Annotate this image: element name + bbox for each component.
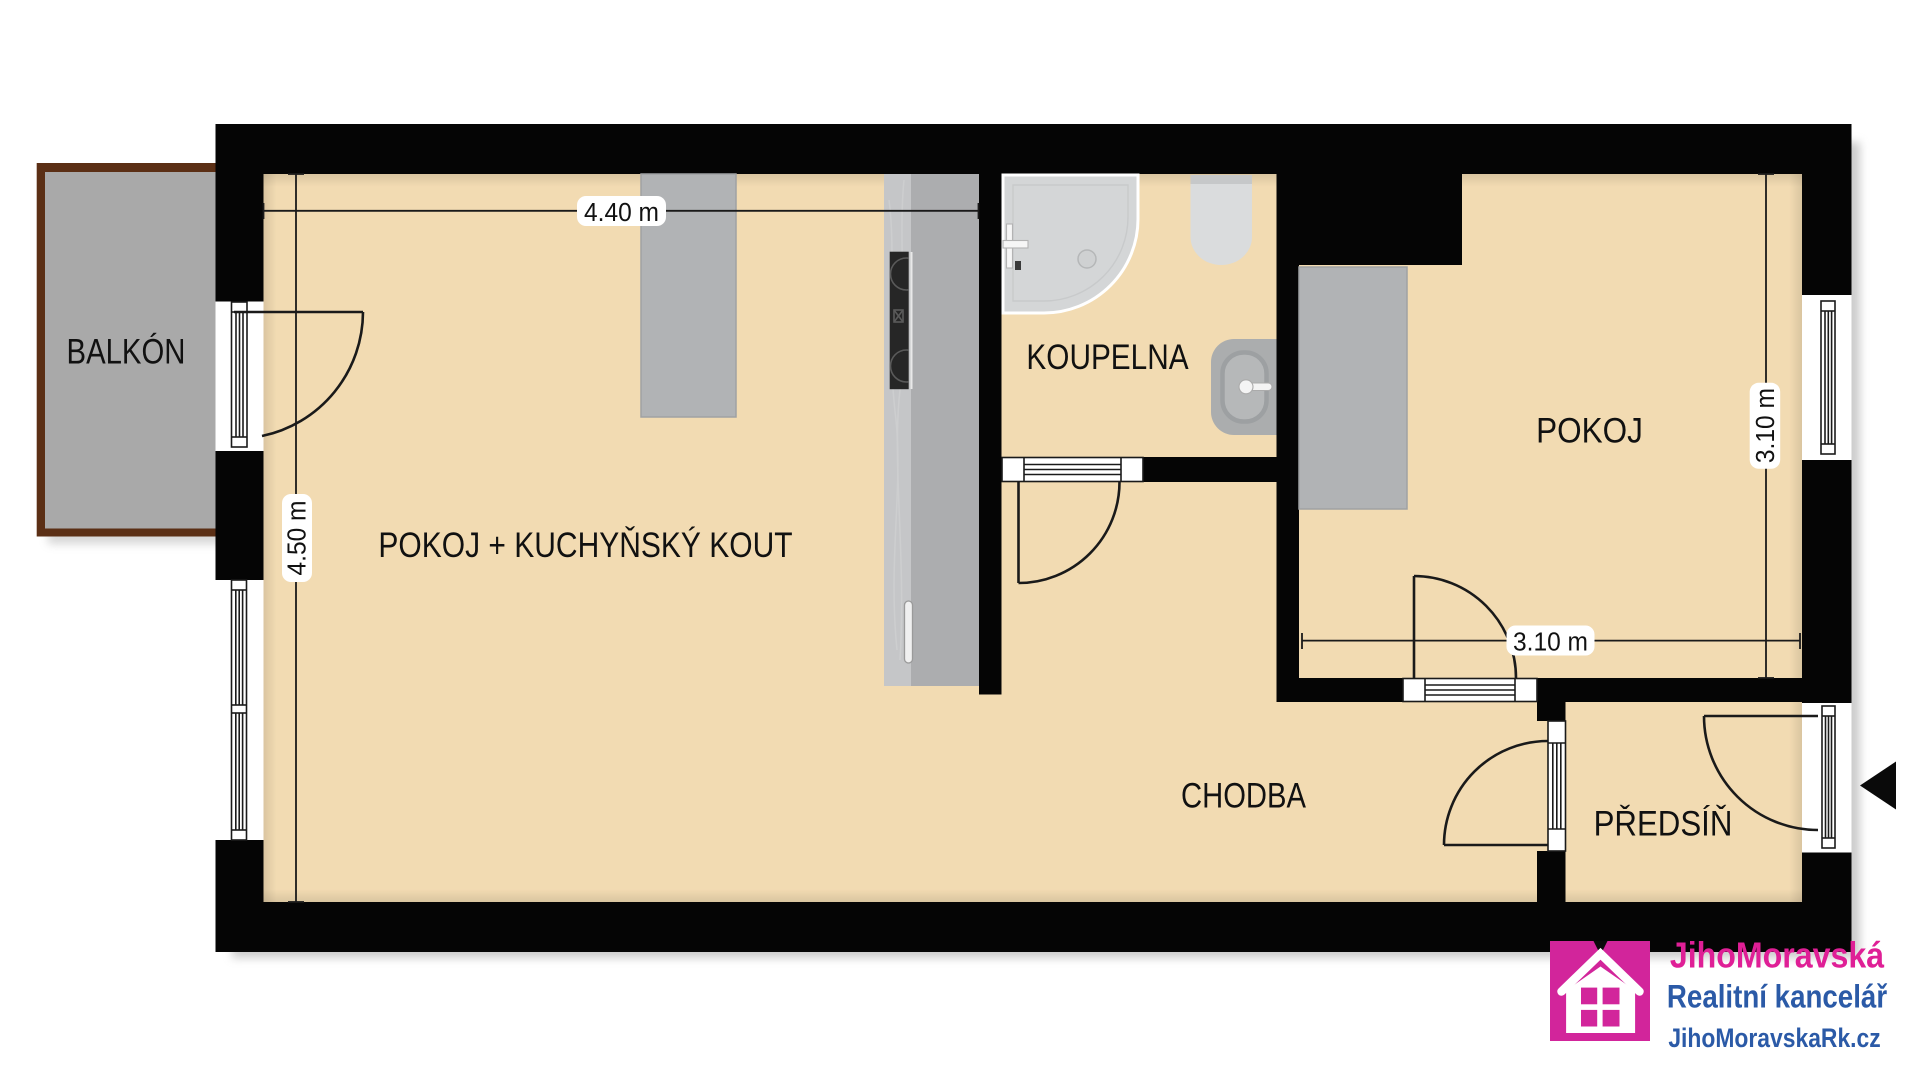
- svg-text:POKOJ: POKOJ: [1536, 412, 1643, 451]
- svg-text:4.40 m: 4.40 m: [584, 198, 659, 227]
- svg-text:PŘEDSÍŇ: PŘEDSÍŇ: [1594, 805, 1733, 844]
- svg-text:KOUPELNA: KOUPELNA: [1026, 336, 1188, 376]
- svg-text:3.10 m: 3.10 m: [1513, 628, 1588, 657]
- svg-text:JihoMoravská: JihoMoravská: [1670, 936, 1885, 976]
- svg-text:3.10 m: 3.10 m: [1751, 388, 1780, 463]
- svg-text:CHODBA: CHODBA: [1181, 776, 1306, 815]
- svg-text:JihoMoravskaRk.cz: JihoMoravskaRk.cz: [1668, 1023, 1880, 1053]
- svg-text:4.50 m: 4.50 m: [283, 501, 312, 576]
- svg-text:POKOJ + KUCHYŇSKÝ KOUT: POKOJ + KUCHYŇSKÝ KOUT: [378, 525, 792, 565]
- svg-text:Realitní kancelář: Realitní kancelář: [1667, 980, 1888, 1015]
- svg-text:BALKÓN: BALKÓN: [67, 331, 186, 371]
